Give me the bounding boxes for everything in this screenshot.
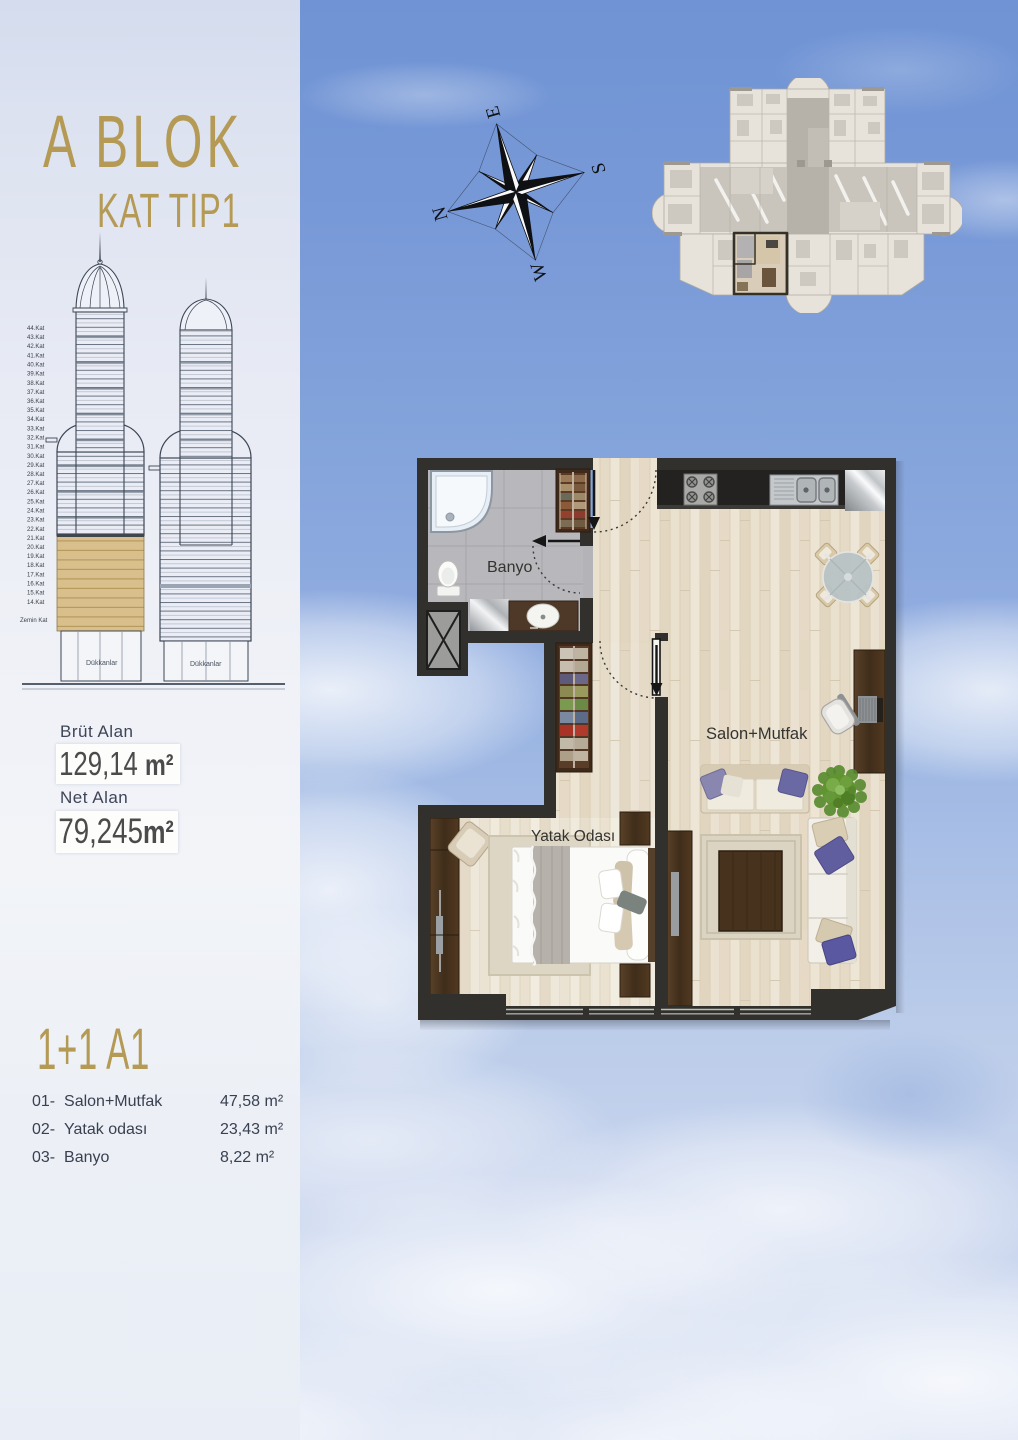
svg-text:Salon+Mutfak: Salon+Mutfak bbox=[706, 725, 808, 743]
svg-text:27.Kat: 27.Kat bbox=[27, 481, 45, 487]
svg-text:W: W bbox=[527, 260, 552, 283]
svg-text:32.Kat: 32.Kat bbox=[27, 436, 45, 442]
svg-text:29.Kat: 29.Kat bbox=[27, 463, 45, 469]
svg-text:24.Kat: 24.Kat bbox=[27, 509, 45, 515]
svg-text:23.Kat: 23.Kat bbox=[27, 518, 45, 524]
svg-text:E: E bbox=[482, 104, 505, 121]
svg-text:33.Kat: 33.Kat bbox=[27, 426, 45, 432]
svg-text:43.Kat: 43.Kat bbox=[27, 335, 45, 341]
svg-text:35.Kat: 35.Kat bbox=[27, 408, 45, 414]
svg-text:14.Kat: 14.Kat bbox=[27, 600, 45, 606]
svg-text:22.Kat: 22.Kat bbox=[27, 527, 45, 533]
svg-text:15.Kat: 15.Kat bbox=[27, 591, 45, 597]
svg-text:40.Kat: 40.Kat bbox=[27, 363, 45, 369]
svg-text:42.Kat: 42.Kat bbox=[27, 344, 45, 350]
svg-text:18.Kat: 18.Kat bbox=[27, 563, 45, 569]
svg-text:37.Kat: 37.Kat bbox=[27, 390, 45, 396]
svg-text:S: S bbox=[588, 160, 611, 176]
svg-text:Zemin Kat: Zemin Kat bbox=[20, 618, 48, 624]
svg-text:N: N bbox=[428, 204, 452, 223]
svg-text:Dükkanlar: Dükkanlar bbox=[86, 660, 118, 667]
svg-text:30.Kat: 30.Kat bbox=[27, 454, 45, 460]
svg-text:36.Kat: 36.Kat bbox=[27, 399, 45, 405]
svg-text:Banyo: Banyo bbox=[487, 559, 532, 576]
svg-text:44.Kat: 44.Kat bbox=[27, 326, 45, 332]
svg-text:28.Kat: 28.Kat bbox=[27, 472, 45, 478]
svg-text:21.Kat: 21.Kat bbox=[27, 536, 45, 542]
svg-text:Dükkanlar: Dükkanlar bbox=[190, 661, 222, 668]
svg-text:20.Kat: 20.Kat bbox=[27, 545, 45, 551]
svg-text:17.Kat: 17.Kat bbox=[27, 572, 45, 578]
svg-text:25.Kat: 25.Kat bbox=[27, 499, 45, 505]
svg-text:Yatak Odası: Yatak Odası bbox=[531, 828, 615, 845]
svg-text:26.Kat: 26.Kat bbox=[27, 490, 45, 496]
svg-text:39.Kat: 39.Kat bbox=[27, 372, 45, 378]
svg-text:31.Kat: 31.Kat bbox=[27, 445, 45, 451]
svg-text:34.Kat: 34.Kat bbox=[27, 417, 45, 423]
svg-text:38.Kat: 38.Kat bbox=[27, 381, 45, 387]
svg-text:41.Kat: 41.Kat bbox=[27, 353, 45, 359]
svg-text:19.Kat: 19.Kat bbox=[27, 554, 45, 560]
svg-text:16.Kat: 16.Kat bbox=[27, 582, 45, 588]
